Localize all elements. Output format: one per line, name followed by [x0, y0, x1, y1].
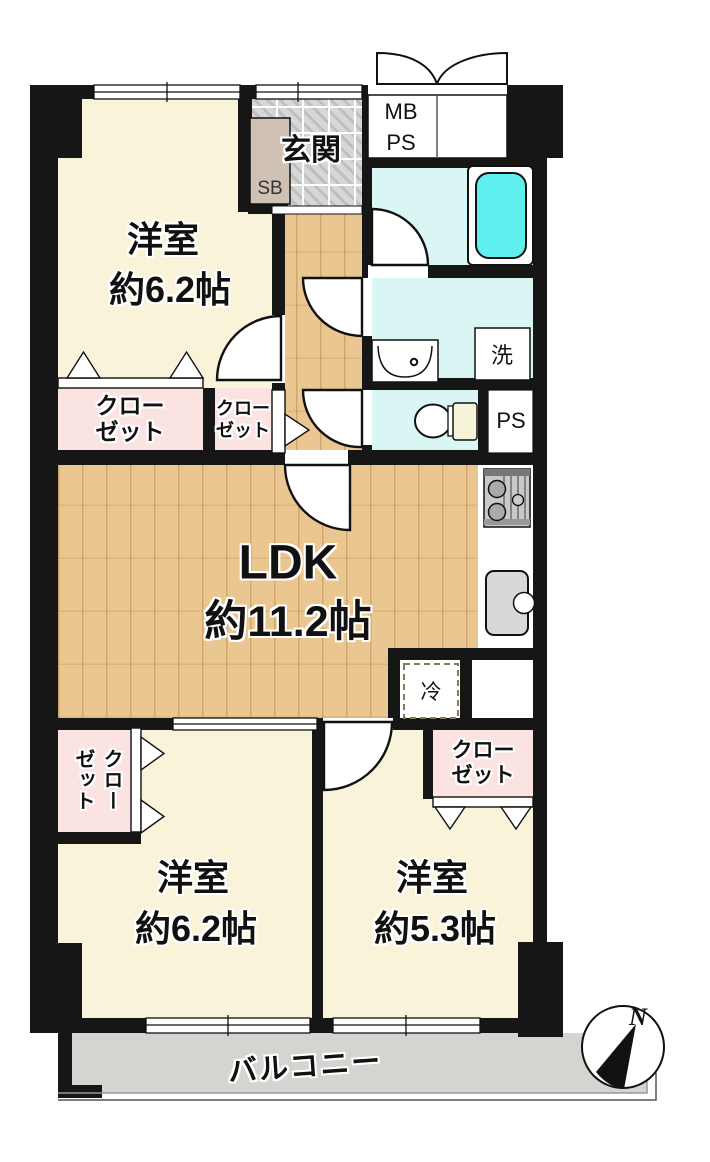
closet-line2: ゼット: [96, 419, 165, 445]
compass-north-label: N: [629, 1004, 647, 1032]
ldk-door: [285, 465, 350, 530]
bedroom-top-size: 約6.2帖: [109, 261, 231, 313]
stove: [484, 469, 530, 527]
toilet-fixture: [415, 403, 477, 440]
bathroom-door: [372, 209, 428, 265]
kitchen-sink: [486, 571, 535, 635]
shoe-box-label: SB: [257, 178, 282, 200]
washing-machine-label: 洗: [491, 338, 513, 370]
closet-hallway-label: クロー ゼット: [216, 398, 270, 441]
closet-line1: クロー: [216, 398, 270, 418]
meter-box-door-right: [437, 53, 507, 84]
floor-plan: 洋室 約6.2帖 玄関 SB MB PS 洗 PS クロー ゼット クロー ゼッ…: [0, 0, 710, 1162]
entrance-label: 玄関: [281, 125, 341, 169]
meter-box-door-left: [377, 53, 437, 84]
meter-box-line2: PS: [386, 130, 415, 155]
refrigerator-label: 冷: [421, 676, 442, 706]
bedroom-top-name: 洋室: [127, 211, 199, 263]
meter-box-line1: MB: [385, 99, 418, 124]
closet-bottom-right-label: クロー ゼット: [452, 738, 515, 788]
plan-linework: [0, 0, 710, 1162]
ldk-size: 約11.2帖: [204, 587, 371, 649]
closet-line2: ゼット: [452, 764, 515, 787]
closet-line1: クロー: [100, 749, 122, 812]
closet-line2: ゼット: [216, 420, 270, 440]
closet-line1: クロー: [452, 739, 515, 762]
closet-bottom-left-label: クロー ゼット: [69, 749, 125, 812]
bedroom-left-size: 約6.2帖: [135, 900, 257, 952]
closet-line1: クロー: [96, 393, 165, 419]
bedroom-left-name: 洋室: [157, 849, 229, 901]
closet-top-left-label: クロー ゼット: [96, 393, 165, 446]
washroom-door: [303, 278, 362, 336]
pipe-space-label: PS: [496, 408, 525, 434]
compass: [582, 1006, 664, 1089]
toilet-door: [303, 390, 362, 447]
bathtub: [468, 166, 533, 265]
meter-box-label: MB PS: [385, 97, 418, 159]
bedroom-top-door: [217, 316, 281, 380]
washbasin: [372, 340, 438, 382]
closet-line2: ゼット: [72, 749, 94, 812]
bedroom-right-name: 洋室: [396, 849, 468, 901]
ldk-name: LDK: [239, 536, 338, 591]
bedroom-right-door: [324, 722, 392, 790]
bedroom-right-size: 約5.3帖: [374, 900, 496, 952]
